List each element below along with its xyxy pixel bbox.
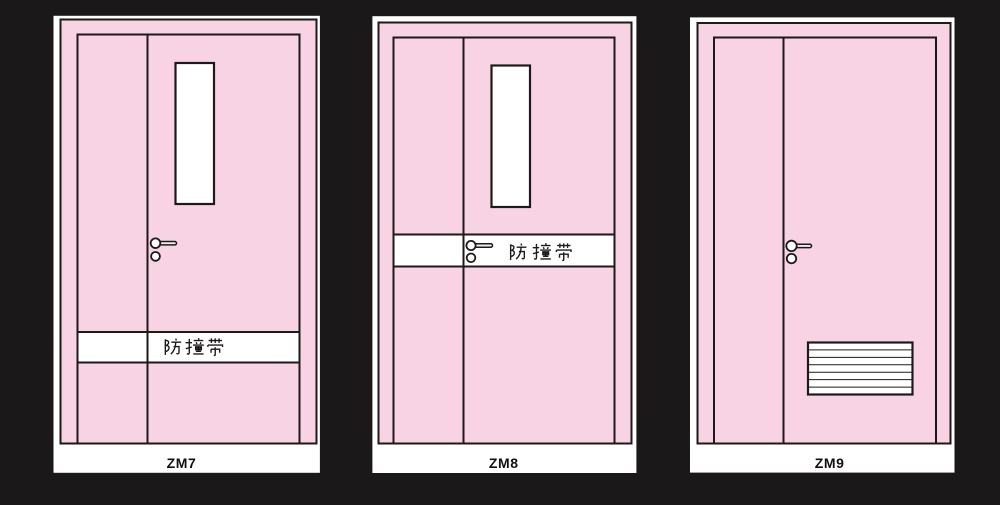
svg-text:ZM9: ZM9 — [815, 455, 845, 471]
svg-text:ZM8: ZM8 — [489, 455, 519, 471]
svg-text:ZM7: ZM7 — [167, 455, 197, 471]
